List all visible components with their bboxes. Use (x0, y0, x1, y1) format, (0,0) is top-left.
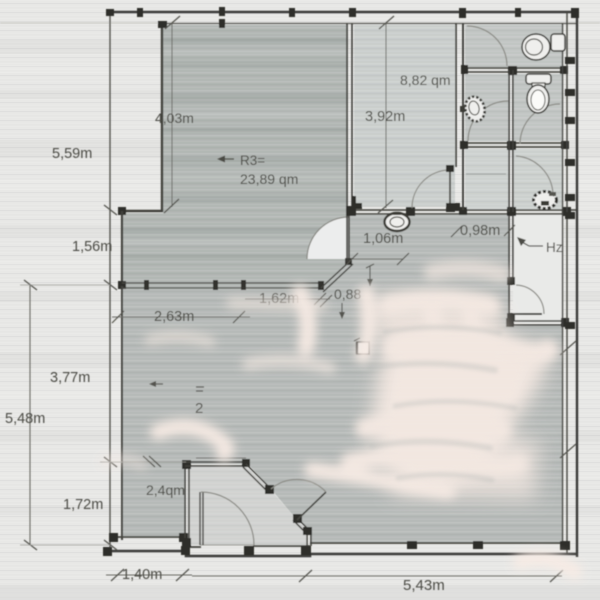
svg-text:2,4qm: 2,4qm (146, 482, 185, 498)
svg-text:4,03m: 4,03m (155, 110, 194, 126)
svg-text:1,06m: 1,06m (363, 231, 403, 247)
svg-text:5,59m: 5,59m (52, 146, 92, 162)
svg-text:2,63m: 2,63m (154, 309, 194, 325)
svg-text:3,92m: 3,92m (365, 109, 405, 125)
svg-text:3,77m: 3,77m (50, 370, 90, 386)
svg-text:8,82 qm: 8,82 qm (400, 72, 451, 88)
svg-text:R3=: R3= (240, 153, 265, 168)
svg-text:5,43m: 5,43m (403, 577, 445, 594)
svg-text:Hz: Hz (546, 240, 563, 255)
svg-text:23,89 qm: 23,89 qm (240, 171, 298, 187)
svg-text:1,72m: 1,72m (63, 497, 103, 513)
svg-text:2: 2 (195, 400, 203, 417)
svg-text:1,56m: 1,56m (72, 239, 112, 255)
svg-text:1,40m: 1,40m (122, 567, 162, 583)
svg-text:0,98m: 0,98m (460, 223, 500, 239)
svg-text:0,88: 0,88 (334, 286, 361, 302)
svg-text:5,48m: 5,48m (5, 411, 45, 427)
